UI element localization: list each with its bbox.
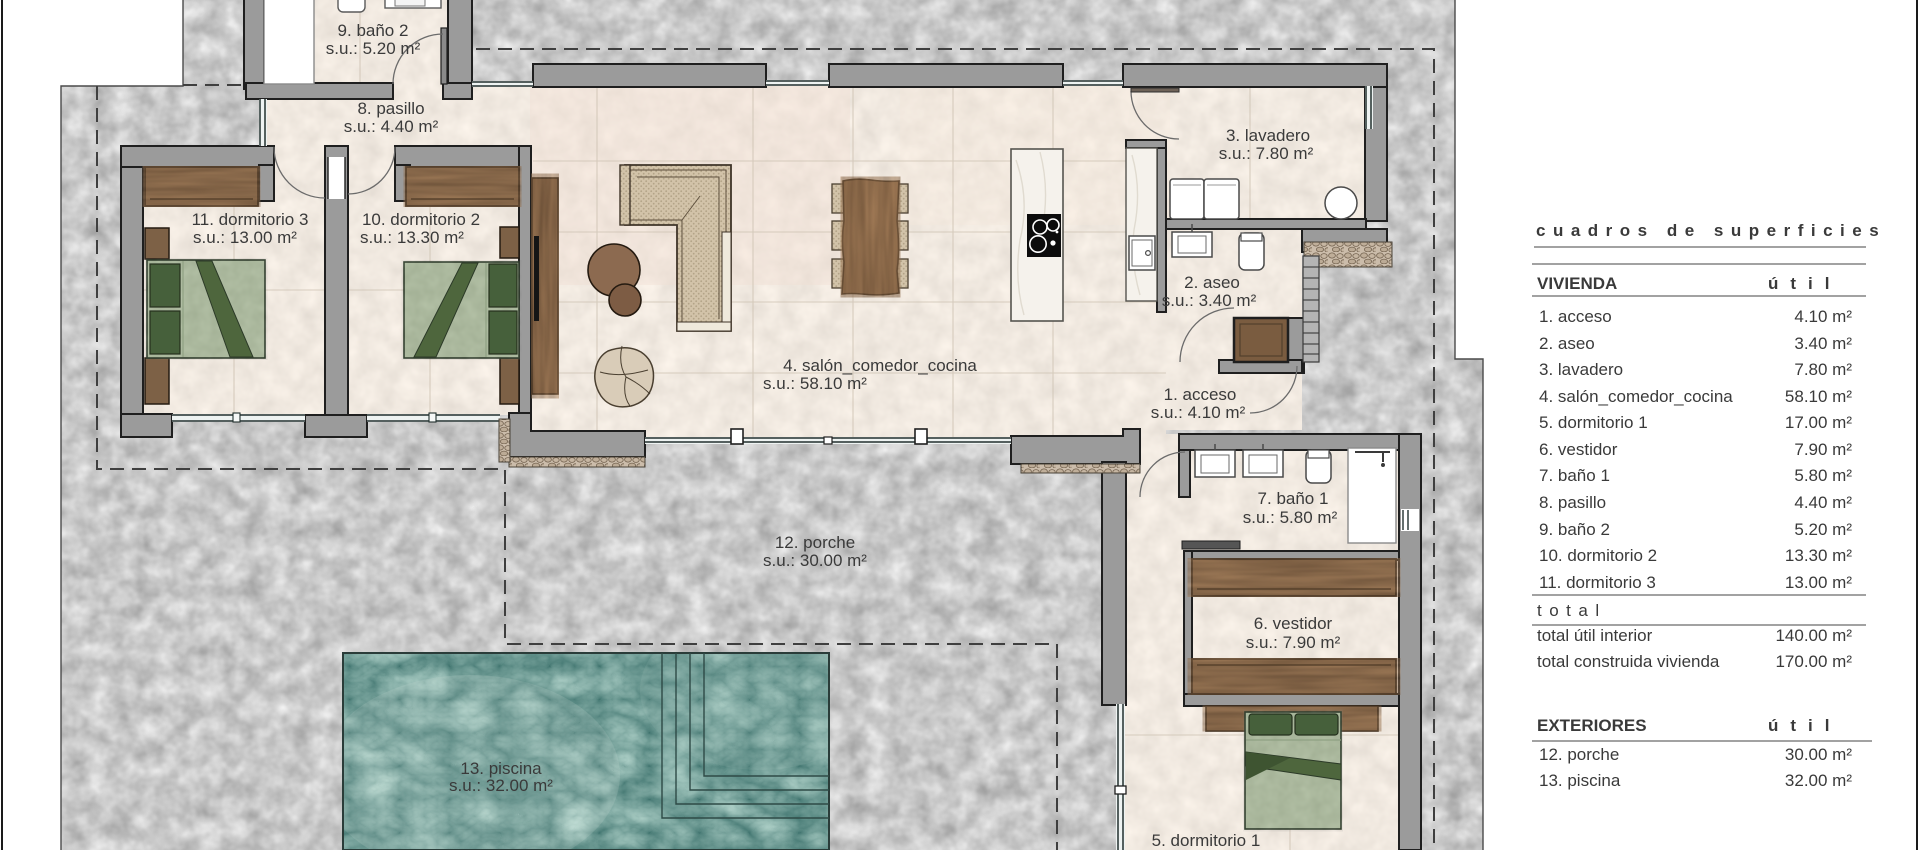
svg-text:1. acceso: 1. acceso <box>1539 307 1612 326</box>
svg-text:VIVIENDA: VIVIENDA <box>1537 274 1617 293</box>
svg-text:s.u.: 30.00 m²: s.u.: 30.00 m² <box>763 551 867 570</box>
svg-text:13. piscina: 13. piscina <box>1539 771 1621 790</box>
svg-text:3.40 m²: 3.40 m² <box>1794 334 1852 353</box>
svg-text:cuadros de superficies: cuadros de superficies <box>1536 221 1886 240</box>
svg-text:7.90 m²: 7.90 m² <box>1794 440 1852 459</box>
svg-text:s.u.: 13.30 m²: s.u.: 13.30 m² <box>360 228 464 247</box>
svg-text:17.00 m²: 17.00 m² <box>1785 413 1852 432</box>
svg-text:9. baño 2: 9. baño 2 <box>338 21 409 40</box>
svg-text:s.u.: 32.00 m²: s.u.: 32.00 m² <box>449 776 553 795</box>
svg-text:12. porche: 12. porche <box>1539 745 1619 764</box>
svg-text:4. salón_comedor_cocina: 4. salón_comedor_cocina <box>1539 387 1733 406</box>
svg-text:13.30 m²: 13.30 m² <box>1785 546 1852 565</box>
svg-text:5.80 m²: 5.80 m² <box>1794 466 1852 485</box>
svg-text:12. porche: 12. porche <box>775 533 855 552</box>
svg-text:s.u.: 3.40 m²: s.u.: 3.40 m² <box>1162 291 1257 310</box>
svg-text:s.u.: 4.10 m²: s.u.: 4.10 m² <box>1151 403 1246 422</box>
svg-text:58.10 m²: 58.10 m² <box>1785 387 1852 406</box>
svg-text:32.00 m²: 32.00 m² <box>1785 771 1852 790</box>
svg-text:13.00 m²: 13.00 m² <box>1785 573 1852 592</box>
svg-text:s.u.: 7.80 m²: s.u.: 7.80 m² <box>1219 144 1314 163</box>
svg-text:30.00 m²: 30.00 m² <box>1785 745 1852 764</box>
svg-text:3. lavadero: 3. lavadero <box>1539 360 1623 379</box>
svg-text:7.80 m²: 7.80 m² <box>1794 360 1852 379</box>
svg-text:5.20 m²: 5.20 m² <box>1794 520 1852 539</box>
svg-text:6. vestidor: 6. vestidor <box>1539 440 1618 459</box>
svg-text:9. baño 2: 9. baño 2 <box>1539 520 1610 539</box>
svg-text:5. dormitorio 1: 5. dormitorio 1 <box>1539 413 1648 432</box>
svg-text:170.00 m²: 170.00 m² <box>1775 652 1852 671</box>
svg-text:total: total <box>1537 601 1607 620</box>
svg-text:útil: útil <box>1768 274 1842 293</box>
svg-text:4.40 m²: 4.40 m² <box>1794 493 1852 512</box>
svg-text:5. dormitorio 1: 5. dormitorio 1 <box>1152 831 1261 850</box>
svg-text:s.u.: 13.00 m²: s.u.: 13.00 m² <box>193 228 297 247</box>
svg-text:total construida vivienda: total construida vivienda <box>1537 652 1720 671</box>
svg-text:s.u.: 5.20 m²: s.u.: 5.20 m² <box>326 39 421 58</box>
svg-text:10. dormitorio 2: 10. dormitorio 2 <box>362 210 480 229</box>
svg-text:3. lavadero: 3. lavadero <box>1226 126 1310 145</box>
svg-text:11. dormitorio 3: 11. dormitorio 3 <box>1539 573 1656 592</box>
svg-text:útil: útil <box>1768 716 1842 735</box>
svg-text:8. pasillo: 8. pasillo <box>1539 493 1606 512</box>
svg-text:4. salón_comedor_cocina: 4. salón_comedor_cocina <box>783 356 977 375</box>
svg-text:s.u.: 5.80 m²: s.u.: 5.80 m² <box>1243 508 1338 527</box>
svg-text:total útil interior: total útil interior <box>1537 626 1653 645</box>
svg-text:s.u.: 58.10 m²: s.u.: 58.10 m² <box>763 374 867 393</box>
svg-text:2. aseo: 2. aseo <box>1184 273 1240 292</box>
svg-text:7. baño 1: 7. baño 1 <box>1258 489 1329 508</box>
svg-text:10. dormitorio 2: 10. dormitorio 2 <box>1539 546 1657 565</box>
svg-text:6. vestidor: 6. vestidor <box>1254 614 1333 633</box>
svg-text:s.u.: 4.40 m²: s.u.: 4.40 m² <box>344 117 439 136</box>
svg-text:140.00 m²: 140.00 m² <box>1775 626 1852 645</box>
svg-text:7. baño 1: 7. baño 1 <box>1539 466 1610 485</box>
svg-text:EXTERIORES: EXTERIORES <box>1537 716 1647 735</box>
svg-text:8. pasillo: 8. pasillo <box>357 99 424 118</box>
svg-text:11. dormitorio 3: 11. dormitorio 3 <box>192 210 309 229</box>
svg-text:s.u.: 7.90 m²: s.u.: 7.90 m² <box>1246 633 1341 652</box>
svg-text:1. acceso: 1. acceso <box>1164 385 1237 404</box>
svg-text:4.10 m²: 4.10 m² <box>1794 307 1852 326</box>
svg-text:2. aseo: 2. aseo <box>1539 334 1595 353</box>
